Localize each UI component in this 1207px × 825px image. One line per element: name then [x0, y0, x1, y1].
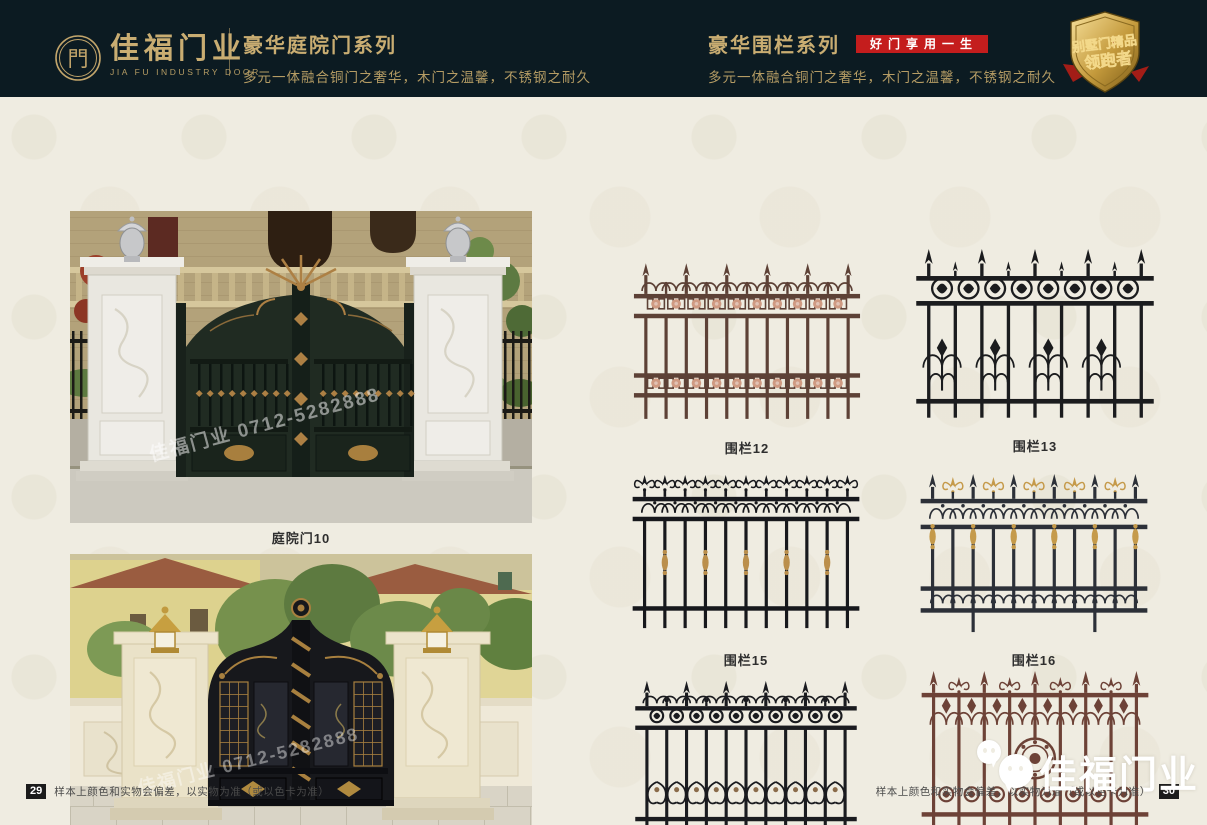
- fence-illustration-15: [626, 471, 866, 645]
- fence-illustration-12: [628, 257, 866, 433]
- footer-right: 样本上颜色和实物会偏差，以实物为准（或以色卡为准） 30: [876, 784, 1179, 799]
- page-number-right: 30: [1159, 784, 1179, 799]
- slogan-badge: 好门享用一生: [856, 35, 988, 53]
- series-left-subtitle: 多元一体融合铜门之奢华，木门之温馨，不锈钢之耐久: [243, 66, 591, 86]
- fence-illustration-18: [904, 671, 1166, 825]
- fence-illustration-16: [904, 471, 1164, 645]
- series-left: 豪华庭院门系列 多元一体融合铜门之奢华，木门之温馨，不锈钢之耐久: [243, 29, 591, 86]
- brand-block: 佳福门业 JIA FU INDUSTRY DOOR: [110, 34, 261, 77]
- brand-name: 佳福门业: [110, 34, 261, 64]
- disclaimer-left: 样本上颜色和实物会偏差，以实物为准（或以色卡为准）: [54, 784, 329, 799]
- disclaimer-right: 样本上颜色和实物会偏差，以实物为准（或以色卡为准）: [876, 784, 1151, 799]
- fence-caption-16: 围栏16: [904, 650, 1164, 669]
- header: 門 佳福门业 JIA FU INDUSTRY DOOR 豪华庭院门系列 多元一体…: [0, 0, 1207, 97]
- series-right: 豪华围栏系列 好门享用一生 多元一体融合铜门之奢华，木门之温馨，不锈钢之耐久: [708, 29, 1056, 86]
- fence-caption-12: 围栏12: [628, 438, 866, 457]
- series-right-title: 豪华围栏系列: [708, 29, 840, 58]
- fence-illustration-13: [910, 245, 1160, 431]
- fence-caption-13: 围栏13: [910, 436, 1160, 455]
- series-right-subtitle: 多元一体融合铜门之奢华，木门之温馨，不锈钢之耐久: [708, 66, 1056, 86]
- emblem-character: 門: [68, 48, 89, 71]
- fence-illustration-17: [628, 677, 864, 825]
- fence-figure-15: 围栏15: [626, 471, 866, 669]
- fence-figure-16: 围栏16: [904, 471, 1164, 669]
- gate-figure-1: 佳福门业 0712-5282888 庭院门10: [70, 211, 532, 547]
- shield-badge-icon: 别墅门精品 领跑者: [1059, 8, 1151, 98]
- fence-figure-12: 围栏12: [628, 257, 866, 457]
- series-left-title: 豪华庭院门系列: [243, 29, 397, 58]
- catalog-content: 佳福门业 0712-5282888 庭院门10 佳福门业 0712-528288…: [0, 97, 1207, 825]
- brand-name-en: JIA FU INDUSTRY DOOR: [110, 67, 261, 77]
- fence-caption-15: 围栏15: [626, 650, 866, 669]
- brand-emblem-icon: 門: [54, 34, 102, 82]
- fence-figure-13: 围栏13: [910, 245, 1160, 455]
- footer-left: 29 样本上颜色和实物会偏差，以实物为准（或以色卡为准）: [26, 784, 329, 799]
- header-divider: [229, 28, 230, 76]
- gate-photo-1: 佳福门业 0712-5282888: [70, 211, 532, 523]
- page-number-left: 29: [26, 784, 46, 799]
- fence-figure-17: 围栏17: [628, 677, 864, 825]
- catalog-page: 門 佳福门业 JIA FU INDUSTRY DOOR 豪华庭院门系列 多元一体…: [0, 0, 1207, 825]
- gate-caption-1: 庭院门10: [70, 528, 532, 547]
- fence-figure-18: 围栏18: [904, 671, 1166, 825]
